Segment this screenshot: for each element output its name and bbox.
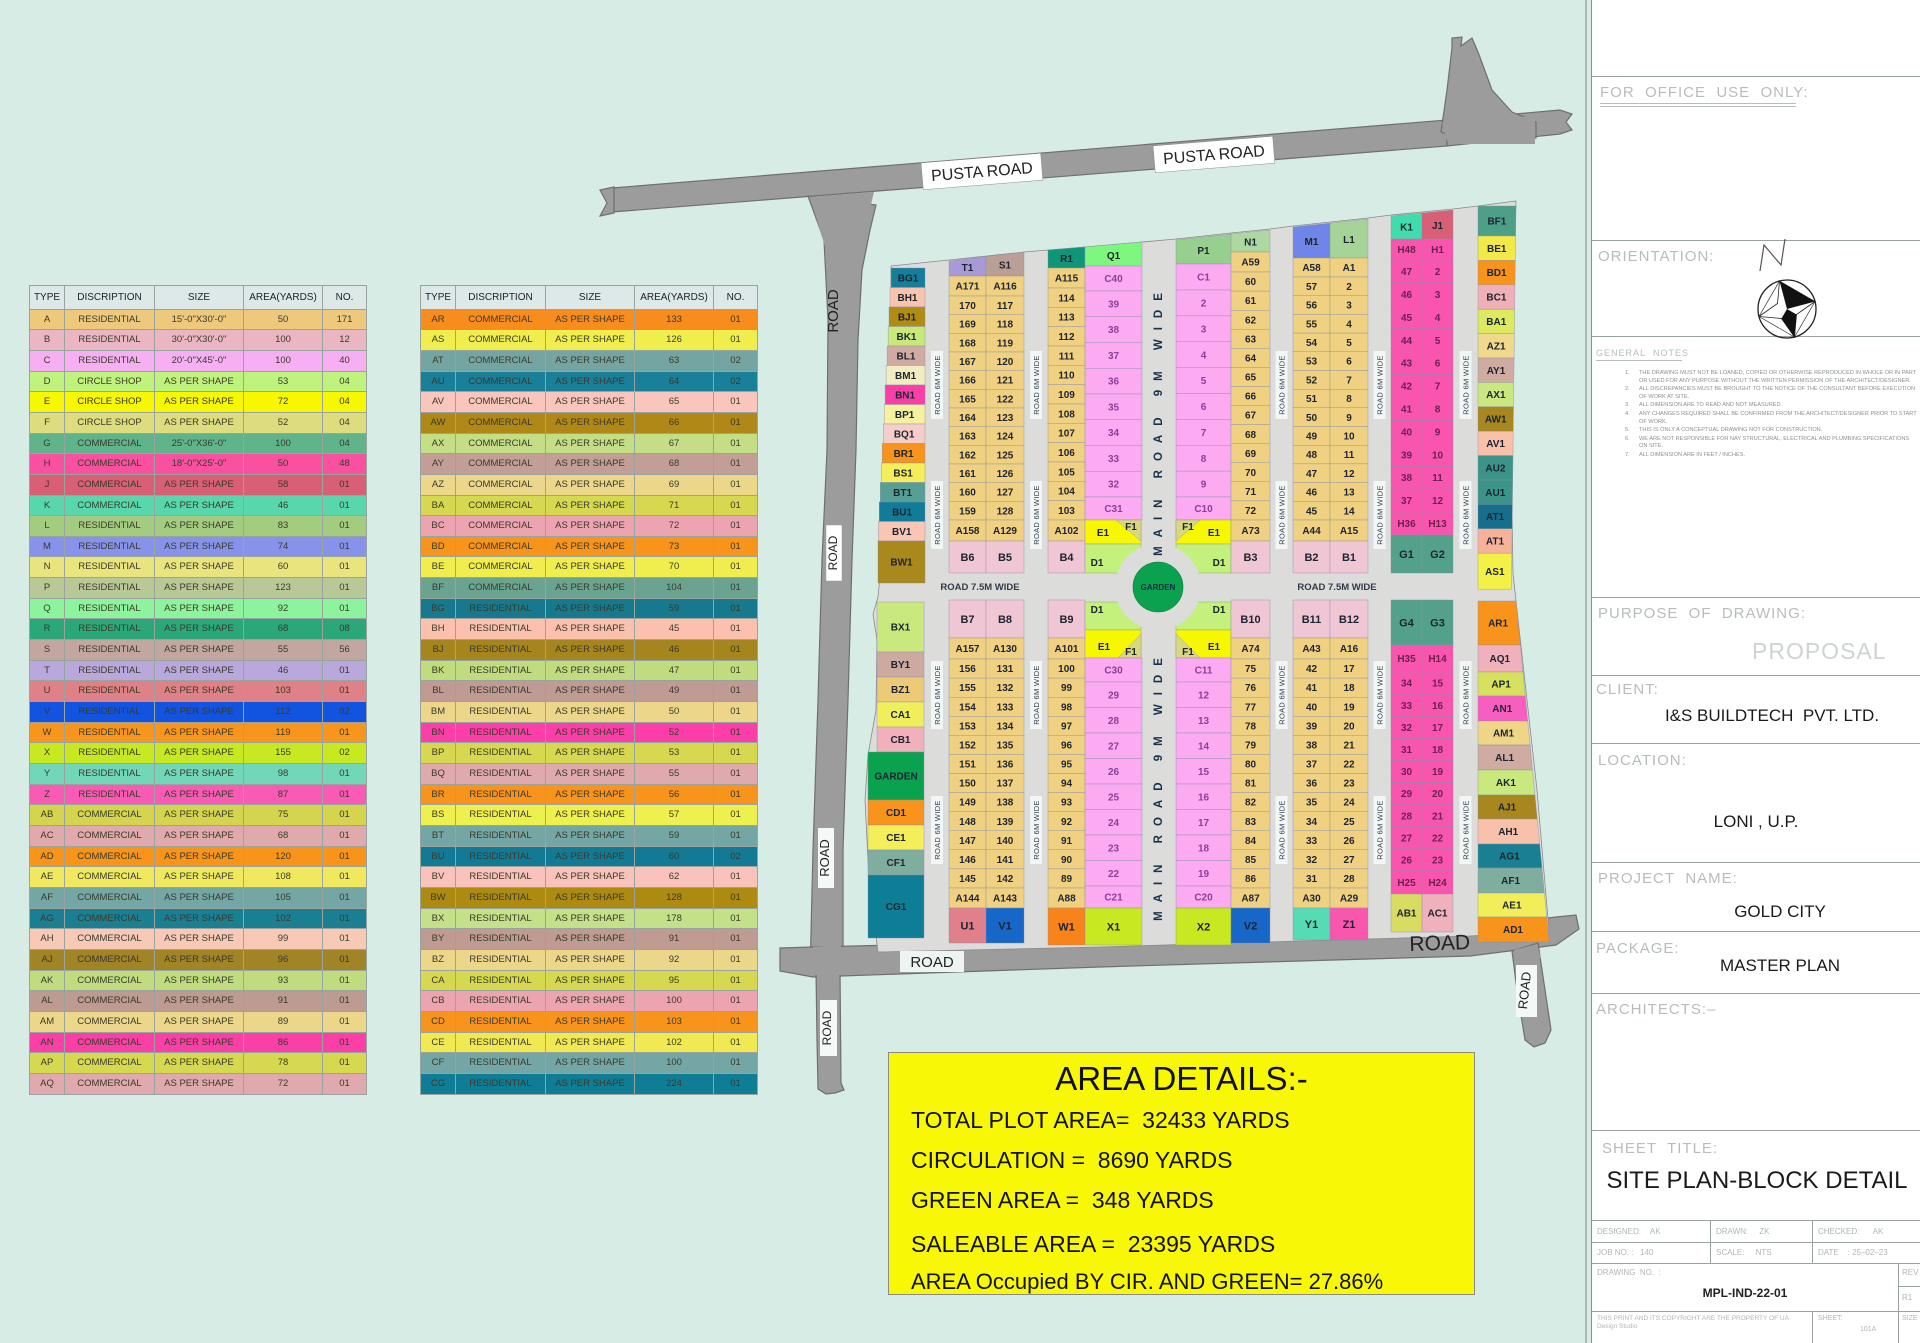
svg-text:81: 81 [1245,779,1257,790]
svg-text:21: 21 [1432,811,1444,822]
svg-text:A59: A59 [1241,258,1260,269]
svg-text:70: 70 [1245,468,1257,479]
svg-text:F1: F1 [1182,522,1194,533]
svg-text:9: 9 [1201,480,1207,491]
svg-text:G1: G1 [1399,549,1414,561]
svg-text:8: 8 [1346,394,1352,405]
svg-text:C20: C20 [1194,893,1213,904]
svg-text:18: 18 [1343,683,1355,694]
svg-text:A30: A30 [1302,894,1321,905]
svg-text:5: 5 [1435,336,1441,347]
svg-text:ROAD 6M WIDE: ROAD 6M WIDE [933,665,942,724]
svg-text:5: 5 [1346,338,1352,349]
svg-text:38: 38 [1306,741,1318,752]
svg-text:A16: A16 [1340,644,1359,655]
svg-text:64: 64 [1245,353,1257,364]
svg-text:BW1: BW1 [890,558,913,569]
svg-text:94: 94 [1061,779,1073,790]
svg-text:BM1: BM1 [895,371,917,382]
svg-text:53: 53 [1306,357,1318,368]
svg-text:52: 52 [1306,375,1318,386]
svg-text:135: 135 [997,741,1014,752]
svg-text:BJ1: BJ1 [898,312,917,323]
svg-text:22: 22 [1432,833,1444,844]
svg-text:AS1: AS1 [1485,567,1505,578]
svg-text:133: 133 [997,702,1014,713]
svg-text:24: 24 [1343,798,1355,809]
svg-text:AX1: AX1 [1486,390,1506,401]
svg-text:AG1: AG1 [1499,852,1520,863]
svg-text:6: 6 [1346,357,1352,368]
svg-text:37: 37 [1401,496,1413,507]
svg-text:17: 17 [1343,664,1355,675]
svg-text:26: 26 [1401,856,1413,867]
svg-text:25: 25 [1108,792,1120,803]
svg-text:BU1: BU1 [892,507,912,518]
svg-text:33: 33 [1306,836,1318,847]
svg-text:47: 47 [1306,469,1318,480]
svg-text:C40: C40 [1104,274,1123,285]
svg-text:BN1: BN1 [895,390,915,401]
svg-text:126: 126 [997,469,1014,480]
svg-text:BS1: BS1 [893,468,913,479]
svg-text:H35: H35 [1397,654,1416,665]
svg-text:118: 118 [997,320,1014,331]
svg-text:163: 163 [959,432,976,443]
svg-text:AB1: AB1 [1396,909,1416,920]
svg-text:ROAD 6M WIDE: ROAD 6M WIDE [1032,355,1041,414]
svg-text:33: 33 [1401,701,1413,712]
svg-text:K1: K1 [1400,222,1413,233]
svg-text:AJ1: AJ1 [1498,803,1517,814]
svg-text:39: 39 [1401,450,1413,461]
svg-text:ROAD 6M WIDE: ROAD 6M WIDE [1376,800,1385,859]
svg-text:B5: B5 [998,552,1012,564]
svg-text:BK1: BK1 [896,332,916,343]
svg-text:27: 27 [1401,833,1413,844]
svg-text:125: 125 [997,450,1014,461]
svg-text:60: 60 [1245,277,1257,288]
svg-text:124: 124 [997,432,1014,443]
svg-text:66: 66 [1245,392,1257,403]
svg-text:AM1: AM1 [1493,729,1515,740]
svg-text:B12: B12 [1339,614,1359,626]
svg-text:H13: H13 [1428,519,1447,530]
svg-text:B3: B3 [1243,552,1257,564]
svg-text:D1: D1 [1091,605,1104,616]
svg-text:18: 18 [1432,745,1444,756]
svg-text:29: 29 [1401,789,1413,800]
svg-text:ROAD: ROAD [910,954,954,971]
svg-text:X1: X1 [1107,922,1120,934]
svg-text:23: 23 [1108,843,1120,854]
svg-text:31: 31 [1401,745,1413,756]
svg-text:117: 117 [997,301,1014,312]
svg-text:20: 20 [1343,721,1355,732]
svg-text:40: 40 [1401,427,1413,438]
svg-text:CG1: CG1 [886,902,907,913]
svg-text:A116: A116 [993,282,1017,293]
svg-text:AY1: AY1 [1487,366,1506,377]
svg-text:T1: T1 [962,263,974,274]
svg-text:20: 20 [1432,789,1444,800]
svg-text:ROAD 6M WIDE: ROAD 6M WIDE [1278,355,1287,414]
svg-text:151: 151 [959,760,976,771]
svg-text:22: 22 [1108,869,1120,880]
svg-text:36: 36 [1306,779,1318,790]
svg-text:33: 33 [1108,454,1120,465]
svg-text:D1: D1 [1213,605,1226,616]
svg-text:47: 47 [1401,267,1413,278]
svg-text:28: 28 [1343,874,1355,885]
svg-text:ROAD 6M WIDE: ROAD 6M WIDE [1376,355,1385,414]
svg-text:AU1: AU1 [1485,488,1505,499]
svg-text:7: 7 [1346,375,1352,386]
svg-text:6: 6 [1201,402,1207,413]
svg-text:A130: A130 [993,644,1017,655]
svg-text:AU2: AU2 [1485,463,1505,474]
svg-text:E1: E1 [1208,642,1221,653]
svg-text:46: 46 [1401,290,1413,301]
svg-text:127: 127 [997,488,1014,499]
svg-text:H36: H36 [1397,519,1416,530]
svg-text:132: 132 [997,683,1014,694]
svg-text:E1: E1 [1098,642,1111,653]
svg-text:106: 106 [1058,448,1075,459]
svg-text:BQ1: BQ1 [894,429,915,440]
svg-text:A115: A115 [1055,274,1079,285]
svg-text:H48: H48 [1397,245,1416,256]
svg-text:76: 76 [1245,683,1257,694]
svg-text:4: 4 [1346,319,1352,330]
svg-text:Z1: Z1 [1343,919,1356,931]
svg-text:26: 26 [1108,767,1120,778]
svg-text:AV1: AV1 [1486,439,1505,450]
svg-text:3: 3 [1201,324,1207,335]
svg-text:ROAD 6M WIDE: ROAD 6M WIDE [1462,665,1471,724]
svg-text:119: 119 [997,338,1014,349]
svg-text:27: 27 [1108,741,1120,752]
svg-text:61: 61 [1245,296,1257,307]
svg-text:AE1: AE1 [1502,901,1522,912]
svg-text:112: 112 [1058,332,1075,343]
svg-text:42: 42 [1401,382,1413,393]
svg-text:161: 161 [959,469,976,480]
svg-text:B11: B11 [1302,614,1322,626]
svg-text:168: 168 [959,338,976,349]
svg-text:67: 67 [1245,411,1257,422]
svg-text:ROAD 7.5M WIDE: ROAD 7.5M WIDE [940,582,1019,593]
svg-text:B2: B2 [1304,552,1318,564]
svg-text:110: 110 [1058,371,1075,382]
svg-text:56: 56 [1306,301,1318,312]
svg-text:4: 4 [1435,313,1441,324]
svg-text:3: 3 [1435,290,1441,301]
svg-text:BL1: BL1 [897,351,916,362]
svg-text:167: 167 [959,357,976,368]
svg-text:15: 15 [1198,767,1210,778]
svg-text:91: 91 [1061,836,1073,847]
svg-text:AP1: AP1 [1491,680,1511,691]
svg-text:83: 83 [1245,817,1257,828]
svg-text:ROAD 6M WIDE: ROAD 6M WIDE [1376,665,1385,724]
svg-text:155: 155 [959,683,976,694]
svg-text:S1: S1 [999,261,1012,272]
svg-text:ROAD 6M WIDE: ROAD 6M WIDE [1376,485,1385,544]
svg-text:ROAD: ROAD [820,1010,834,1045]
svg-text:114: 114 [1058,293,1075,304]
svg-text:12: 12 [1198,690,1210,701]
svg-text:38: 38 [1108,325,1120,336]
svg-text:34: 34 [1306,817,1318,828]
svg-text:BC1: BC1 [1486,293,1506,304]
svg-text:G4: G4 [1399,618,1415,630]
svg-text:50: 50 [1306,413,1318,424]
svg-text:71: 71 [1245,487,1257,498]
svg-text:152: 152 [959,741,976,752]
svg-text:AT1: AT1 [1486,537,1505,548]
svg-text:5: 5 [1201,376,1207,387]
svg-text:A15: A15 [1340,526,1359,537]
svg-text:ROAD 6M WIDE: ROAD 6M WIDE [933,485,942,544]
svg-text:150: 150 [959,779,976,790]
svg-text:J1: J1 [1432,221,1444,232]
svg-text:104: 104 [1058,487,1075,498]
svg-text:79: 79 [1245,741,1257,752]
svg-text:38: 38 [1401,473,1413,484]
svg-text:A143: A143 [993,894,1017,905]
svg-text:160: 160 [959,488,976,499]
svg-text:13: 13 [1198,716,1210,727]
svg-text:46: 46 [1306,488,1318,499]
svg-text:BE1: BE1 [1487,244,1507,255]
svg-text:75: 75 [1245,664,1257,675]
svg-text:37: 37 [1108,351,1120,362]
svg-text:153: 153 [959,721,976,732]
svg-text:34: 34 [1401,679,1413,690]
svg-text:D1: D1 [1091,558,1104,569]
svg-text:AF1: AF1 [1501,876,1520,887]
svg-text:159: 159 [959,506,976,517]
svg-text:CD1: CD1 [886,808,906,819]
svg-text:72: 72 [1245,506,1257,517]
svg-text:ROAD 7.5M WIDE: ROAD 7.5M WIDE [1297,582,1376,593]
svg-text:G3: G3 [1430,618,1445,630]
svg-text:A129: A129 [993,526,1017,537]
svg-text:48: 48 [1306,450,1318,461]
svg-text:AH1: AH1 [1498,827,1518,838]
svg-text:H25: H25 [1397,878,1416,889]
svg-text:AR1: AR1 [1488,619,1508,630]
svg-text:19: 19 [1343,702,1355,713]
svg-text:AT1: AT1 [1486,512,1505,523]
svg-text:9: 9 [1435,427,1441,438]
svg-text:E1: E1 [1097,528,1110,539]
svg-text:V2: V2 [1244,921,1257,933]
svg-text:B4: B4 [1059,552,1074,564]
svg-text:138: 138 [997,798,1014,809]
svg-text:A44: A44 [1302,526,1321,537]
svg-text:57: 57 [1306,282,1318,293]
svg-text:24: 24 [1108,818,1120,829]
svg-text:34: 34 [1108,428,1120,439]
svg-text:29: 29 [1108,690,1120,701]
svg-text:69: 69 [1245,449,1257,460]
svg-text:A87: A87 [1241,894,1260,905]
svg-text:128: 128 [997,506,1014,517]
svg-text:100: 100 [1058,664,1075,675]
svg-text:122: 122 [997,394,1014,405]
svg-text:32: 32 [1306,855,1318,866]
svg-text:82: 82 [1245,798,1257,809]
svg-text:32: 32 [1108,480,1120,491]
svg-text:108: 108 [1058,409,1075,420]
svg-text:36: 36 [1108,377,1120,388]
svg-text:27: 27 [1343,855,1355,866]
svg-text:11: 11 [1344,450,1355,461]
svg-text:AZ1: AZ1 [1487,341,1506,352]
svg-text:C10: C10 [1194,504,1213,515]
svg-text:107: 107 [1058,429,1075,440]
svg-text:97: 97 [1061,721,1073,732]
svg-text:22: 22 [1343,760,1355,771]
svg-text:35: 35 [1306,798,1318,809]
svg-text:E1: E1 [1208,528,1221,539]
svg-text:GARDEN: GARDEN [874,772,917,783]
svg-text:X2: X2 [1197,922,1210,934]
svg-text:147: 147 [959,836,976,847]
svg-text:39: 39 [1306,721,1318,732]
svg-text:14: 14 [1198,741,1210,752]
svg-text:F1: F1 [1125,522,1137,533]
svg-text:BA1: BA1 [1486,317,1506,328]
svg-text:B7: B7 [960,614,974,626]
svg-text:89: 89 [1061,874,1073,885]
svg-text:CE1: CE1 [886,833,906,844]
svg-text:7: 7 [1435,382,1441,393]
svg-text:9: 9 [1346,413,1352,424]
svg-text:MAIN ROAD 9M WIDE: MAIN ROAD 9M WIDE [1153,284,1165,556]
svg-text:10: 10 [1343,432,1355,443]
svg-text:A171: A171 [956,282,980,293]
svg-text:A74: A74 [1241,644,1260,655]
svg-text:BX1: BX1 [891,623,911,634]
svg-text:3: 3 [1346,301,1352,312]
svg-text:ROAD 6M WIDE: ROAD 6M WIDE [1032,665,1041,724]
svg-text:BV1: BV1 [892,527,912,538]
svg-text:AC1: AC1 [1427,909,1447,920]
svg-text:42: 42 [1306,664,1318,675]
svg-text:84: 84 [1245,836,1257,847]
svg-text:45: 45 [1306,506,1318,517]
svg-text:A58: A58 [1302,263,1321,274]
svg-text:146: 146 [959,855,976,866]
svg-text:H1: H1 [1431,245,1444,256]
svg-text:GARDEN: GARDEN [1141,583,1176,592]
svg-text:65: 65 [1245,373,1257,384]
svg-text:26: 26 [1343,836,1355,847]
svg-text:113: 113 [1058,313,1075,324]
svg-text:Q1: Q1 [1107,251,1121,262]
svg-text:F1: F1 [1182,647,1194,658]
svg-text:AL1: AL1 [1495,753,1514,764]
svg-text:145: 145 [959,874,976,885]
svg-text:19: 19 [1432,767,1444,778]
svg-text:2: 2 [1346,282,1352,293]
svg-text:25: 25 [1343,817,1355,828]
svg-text:ROAD 6M WIDE: ROAD 6M WIDE [1462,800,1471,859]
svg-text:4: 4 [1201,350,1207,361]
svg-text:8: 8 [1201,454,1207,465]
svg-text:C21: C21 [1104,893,1123,904]
svg-text:ROAD 6M WIDE: ROAD 6M WIDE [1462,485,1471,544]
svg-text:L1: L1 [1343,235,1355,246]
svg-text:80: 80 [1245,760,1257,771]
svg-text:ROAD 6M WIDE: ROAD 6M WIDE [933,800,942,859]
svg-text:10: 10 [1432,450,1444,461]
svg-text:28: 28 [1108,716,1120,727]
svg-text:103: 103 [1058,506,1075,517]
svg-text:164: 164 [959,413,976,424]
svg-text:68: 68 [1245,430,1257,441]
svg-text:37: 37 [1306,760,1318,771]
svg-text:M1: M1 [1305,237,1319,248]
svg-text:A144: A144 [956,894,980,905]
svg-text:86: 86 [1245,874,1257,885]
svg-text:19: 19 [1198,869,1210,880]
svg-text:C1: C1 [1197,273,1210,284]
svg-text:149: 149 [959,798,976,809]
svg-text:41: 41 [1306,683,1318,694]
svg-text:B10: B10 [1240,614,1260,626]
svg-text:AQ1: AQ1 [1490,654,1511,665]
svg-text:13: 13 [1343,488,1355,499]
svg-text:CA1: CA1 [890,710,910,721]
svg-text:77: 77 [1245,702,1257,713]
svg-text:111: 111 [1059,351,1075,362]
svg-text:B1: B1 [1342,552,1356,564]
svg-text:123: 123 [997,413,1014,424]
svg-text:A101: A101 [1055,644,1079,655]
svg-text:166: 166 [959,376,976,387]
svg-text:U1: U1 [960,921,974,933]
svg-text:15: 15 [1432,679,1444,690]
svg-text:85: 85 [1245,855,1257,866]
svg-text:ROAD 6M WIDE: ROAD 6M WIDE [1032,800,1041,859]
svg-text:12: 12 [1343,469,1355,480]
svg-text:14: 14 [1343,506,1355,517]
svg-text:BR1: BR1 [894,449,914,460]
svg-text:A29: A29 [1340,894,1359,905]
svg-text:90: 90 [1061,855,1073,866]
svg-text:Y1: Y1 [1305,919,1318,931]
svg-text:31: 31 [1306,874,1318,885]
svg-text:44: 44 [1401,336,1413,347]
svg-text:AD1: AD1 [1503,925,1523,936]
svg-text:62: 62 [1245,315,1257,326]
svg-text:ROAD: ROAD [1409,931,1470,956]
svg-text:V1: V1 [998,921,1011,933]
svg-text:16: 16 [1432,701,1444,712]
svg-text:131: 131 [997,664,1014,675]
svg-text:BY1: BY1 [891,660,911,671]
svg-text:40: 40 [1306,702,1318,713]
svg-text:A88: A88 [1057,894,1076,905]
svg-text:ROAD 6M WIDE: ROAD 6M WIDE [1278,665,1287,724]
svg-text:ROAD: ROAD [826,535,840,570]
svg-text:C31: C31 [1104,504,1123,515]
svg-text:H14: H14 [1428,654,1447,665]
